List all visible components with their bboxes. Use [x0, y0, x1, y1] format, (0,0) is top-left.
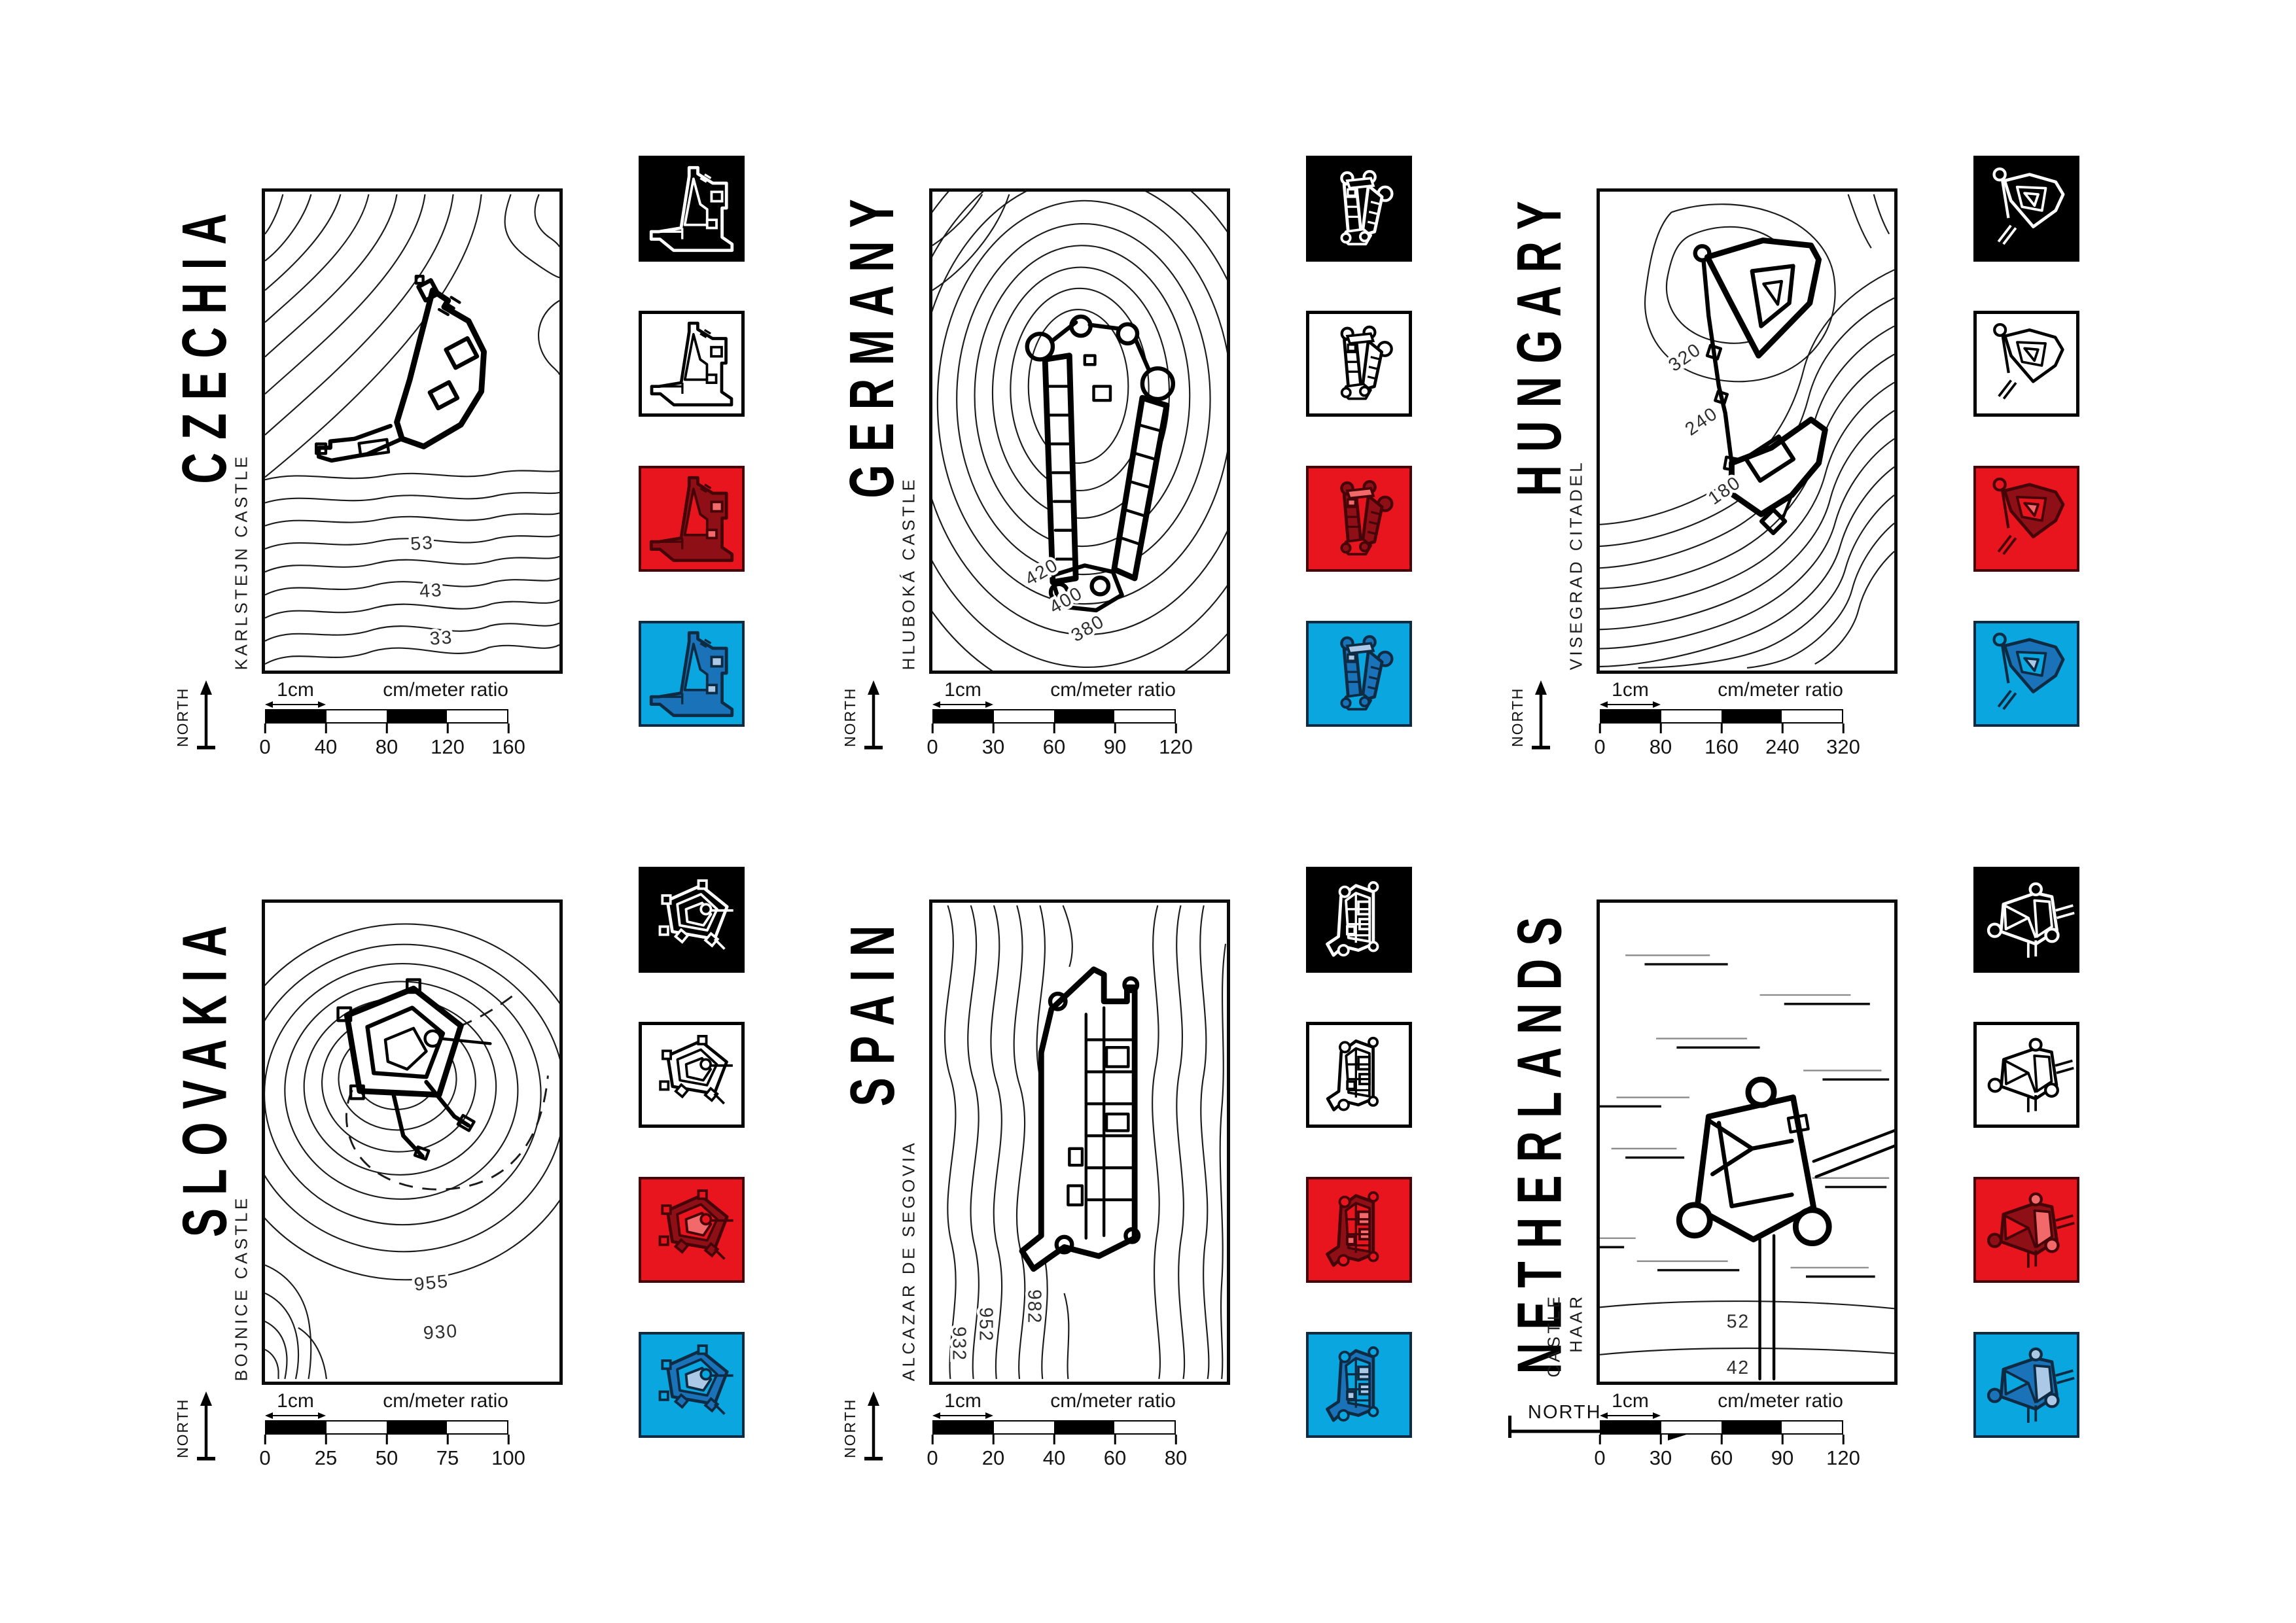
north-indicator: NORTH	[172, 1390, 227, 1463]
scale-tick	[1599, 1435, 1601, 1444]
scale-segments	[1600, 1420, 1843, 1435]
scale-tick-label: 90	[1104, 735, 1126, 759]
contour-label: 932	[948, 1327, 969, 1361]
castle-icon-blue	[1973, 621, 2079, 727]
north-label: NORTH	[1509, 688, 1526, 747]
icon-column	[1306, 867, 1412, 1487]
scale-bar: 1cm cm/meter ratio 0 30 60 90 120	[932, 679, 1176, 771]
icon-column	[1973, 867, 2079, 1487]
scale-ratio-label: cm/meter ratio	[1050, 679, 1176, 701]
scale-unit-label: 1cm	[1600, 679, 1661, 701]
castle-icon-white	[639, 311, 745, 417]
scale-tick-label: 0	[1594, 1446, 1605, 1470]
castle-plan	[316, 276, 484, 461]
north-label: NORTH	[841, 1399, 858, 1458]
castle-icon-black	[1973, 867, 2079, 973]
castle-icon-blue	[1306, 621, 1412, 727]
scale-unit-label: 1cm	[932, 1390, 993, 1412]
topo-map: 53 43 33	[262, 188, 563, 674]
scale-tick-label: 160	[1704, 735, 1739, 759]
scale-bar: 1cm cm/meter ratio 0 80 160 240 320	[1600, 679, 1843, 771]
castle-icon-blue	[1973, 1332, 2079, 1438]
castle-icon-blue	[639, 1332, 745, 1438]
panel-slovakia: SLOVAKIA BOJNICE CASTLE	[167, 867, 749, 1527]
castle-icon-black	[639, 156, 745, 262]
scale-tick-label: 30	[982, 735, 1004, 759]
scale-tick	[1843, 724, 1845, 733]
panel-spain: SPAIN ALCAZAR DE SEGOVIA	[834, 867, 1417, 1527]
north-label: NORTH	[1528, 1402, 1602, 1423]
country-title: CZECHIA	[168, 184, 240, 500]
scale-unit-label: 1cm	[265, 1390, 326, 1412]
scale-tick	[1114, 1435, 1116, 1444]
scale-tick	[1660, 1435, 1662, 1444]
scale-tick-label: 120	[431, 735, 465, 759]
scale-tick	[264, 1435, 266, 1444]
scale-tick	[386, 1435, 388, 1444]
scale-ratio-label: cm/meter ratio	[383, 679, 508, 701]
scale-tick	[1782, 1435, 1784, 1444]
scale-tick-label: 0	[927, 735, 938, 759]
contour-label: 52	[1727, 1312, 1750, 1333]
castle-icon-white	[639, 1022, 745, 1128]
scale-bar: 1cm cm/meter ratio 0 25 50 75 100	[265, 1390, 508, 1482]
scale-tick-label: 120	[1826, 1446, 1860, 1470]
north-label: NORTH	[174, 1399, 191, 1458]
scale-tick	[508, 724, 510, 733]
scale-tick	[1843, 1435, 1845, 1444]
panel-germany: GERMANY HLUBOKÁ CASTLE	[834, 156, 1417, 816]
scale-ratio-label: cm/meter ratio	[1718, 1390, 1843, 1412]
contour-label: 240	[1682, 403, 1722, 440]
scale-ratio-label: cm/meter ratio	[1050, 1390, 1176, 1412]
scale-tick-label: 160	[491, 735, 525, 759]
scale-tick	[1114, 724, 1116, 733]
scale-tick	[264, 724, 266, 733]
scale-tick	[1053, 1435, 1055, 1444]
scale-tick-label: 25	[315, 1446, 337, 1470]
contour-label: 43	[419, 580, 444, 602]
castle-icon-black	[639, 867, 745, 973]
castle-name: ALCAZAR DE SEGOVIA	[898, 1140, 920, 1382]
contour-label: 33	[429, 627, 454, 649]
scale-tick-label: 0	[259, 735, 270, 759]
icon-column	[639, 156, 745, 776]
scale-tick	[1599, 724, 1601, 733]
icon-column	[1973, 156, 2079, 776]
castle-icon-white	[1306, 311, 1412, 417]
scale-segments	[932, 709, 1176, 724]
one-cm-arrow-icon	[1600, 1411, 1661, 1420]
scale-tick-label: 30	[1650, 1446, 1672, 1470]
scale-tick-label: 90	[1771, 1446, 1793, 1470]
topo-map: 982 952 932	[929, 899, 1230, 1385]
scale-tick-label: 40	[315, 735, 337, 759]
scale-tick-label: 320	[1826, 735, 1860, 759]
icon-column	[1306, 156, 1412, 776]
country-title: GERMANY	[836, 184, 908, 500]
scale-tick	[386, 724, 388, 733]
scale-tick-label: 40	[1043, 1446, 1065, 1470]
castle-icon-red	[1306, 1177, 1412, 1283]
scale-tick-label: 20	[982, 1446, 1004, 1470]
poster: { "shared": { "unit_label": "1cm", "rati…	[0, 0, 2296, 1623]
north-label: NORTH	[174, 688, 191, 747]
castle-plan	[1679, 1079, 1894, 1379]
scale-tick	[1660, 724, 1662, 733]
panel-czechia: CZECHIA KARLSTEJN CASTLE	[167, 156, 749, 816]
scale-tick-label: 80	[1650, 735, 1672, 759]
one-cm-arrow-icon	[265, 700, 326, 709]
north-indicator: NORTH	[839, 1390, 894, 1463]
castle-name: KARLSTEJN CASTLE	[230, 454, 253, 671]
scale-bar: 1cm cm/meter ratio 0 20 40 60 80	[932, 1390, 1176, 1482]
scale-segments	[932, 1420, 1176, 1435]
castle-name: BOJNICE CASTLE	[230, 1195, 253, 1381]
scale-segments	[265, 1420, 508, 1435]
scale-unit-label: 1cm	[1600, 1390, 1661, 1412]
scale-tick-label: 80	[1165, 1446, 1187, 1470]
scale-tick	[1175, 724, 1177, 733]
castle-icon-white	[1973, 1022, 2079, 1128]
country-title: SPAIN	[836, 896, 908, 1123]
scale-segments	[265, 709, 508, 724]
topo-map: 955 930	[262, 899, 563, 1385]
scale-tick	[1782, 724, 1784, 733]
castle-icon-black	[1306, 156, 1412, 262]
contour-label: 982	[1024, 1289, 1045, 1324]
scale-tick-label: 60	[1104, 1446, 1126, 1470]
topo-map: 320 240 180	[1597, 188, 1898, 674]
castle-icon-red	[639, 1177, 745, 1283]
scale-tick	[447, 724, 449, 733]
contour-label: 952	[975, 1307, 996, 1342]
scale-tick-label: 0	[927, 1446, 938, 1470]
scale-tick-label: 100	[491, 1446, 525, 1470]
scale-tick	[325, 1435, 327, 1444]
contour-label: 930	[423, 1321, 459, 1344]
scale-ratio-label: cm/meter ratio	[383, 1390, 508, 1412]
scale-segments	[1600, 709, 1843, 724]
country-title: HUNGARY	[1503, 184, 1575, 500]
contour-label: 42	[1727, 1357, 1750, 1378]
one-cm-arrow-icon	[932, 1411, 993, 1420]
north-indicator: NORTH	[839, 679, 894, 752]
castle-icon-black	[1306, 867, 1412, 973]
scale-tick	[993, 724, 995, 733]
one-cm-arrow-icon	[1600, 700, 1661, 709]
scale-tick-label: 120	[1159, 735, 1193, 759]
panel-netherlands: NETHERLANDS CASTLE HAAR	[1502, 867, 2084, 1527]
castle-name: HLUBOKÁ CASTLE	[898, 477, 920, 671]
one-cm-arrow-icon	[265, 1411, 326, 1420]
castle-icon-white	[1306, 1022, 1412, 1128]
north-label: NORTH	[841, 688, 858, 747]
scale-bar: 1cm cm/meter ratio 0 30 60 90 120	[1600, 1390, 1843, 1482]
topo-map: 420 400 380	[929, 188, 1230, 674]
castle-icon-white	[1973, 311, 2079, 417]
castle-icon-black	[1973, 156, 2079, 262]
contour-label: 380	[1068, 611, 1108, 646]
castle-icon-red	[1306, 466, 1412, 572]
panel-hungary: HUNGARY VISEGRAD CITADEL	[1502, 156, 2084, 816]
scale-tick	[932, 1435, 934, 1444]
contour-label: 53	[410, 532, 434, 555]
scale-unit-label: 1cm	[932, 679, 993, 701]
castle-name: CASTLE HAAR	[1542, 1293, 1587, 1377]
castle-icon-red	[1973, 1177, 2079, 1283]
topo-map: 52 42	[1597, 899, 1898, 1385]
scale-tick-label: 50	[376, 1446, 398, 1470]
scale-tick-label: 60	[1043, 735, 1065, 759]
scale-tick	[325, 724, 327, 733]
scale-tick-label: 80	[376, 735, 398, 759]
icon-column	[639, 867, 745, 1487]
castle-name: VISEGRAD CITADEL	[1565, 460, 1587, 670]
scale-bar: 1cm cm/meter ratio 0 40 80 120 160	[265, 679, 508, 771]
scale-tick-label: 60	[1710, 1446, 1733, 1470]
scale-ratio-label: cm/meter ratio	[1718, 679, 1843, 701]
north-indicator: NORTH	[1507, 679, 1562, 752]
contour-label: 320	[1665, 339, 1705, 376]
scale-tick-label: 75	[436, 1446, 459, 1470]
scale-tick	[1175, 1435, 1177, 1444]
scale-tick	[993, 1435, 995, 1444]
castle-icon-blue	[1306, 1332, 1412, 1438]
scale-unit-label: 1cm	[265, 679, 326, 701]
scale-tick	[932, 724, 934, 733]
scale-tick	[1721, 1435, 1723, 1444]
scale-tick-label: 0	[1594, 735, 1605, 759]
contour-label: 955	[413, 1271, 450, 1295]
castle-icon-red	[1973, 466, 2079, 572]
scale-tick-label: 0	[259, 1446, 270, 1470]
castle-icon-red	[639, 466, 745, 572]
country-title: SLOVAKIA	[168, 896, 240, 1254]
scale-tick-label: 240	[1765, 735, 1799, 759]
scale-tick	[447, 1435, 449, 1444]
one-cm-arrow-icon	[932, 700, 993, 709]
castle-icon-blue	[639, 621, 745, 727]
scale-tick	[1053, 724, 1055, 733]
scale-tick	[1721, 724, 1723, 733]
north-indicator: NORTH	[172, 679, 227, 752]
scale-tick	[508, 1435, 510, 1444]
